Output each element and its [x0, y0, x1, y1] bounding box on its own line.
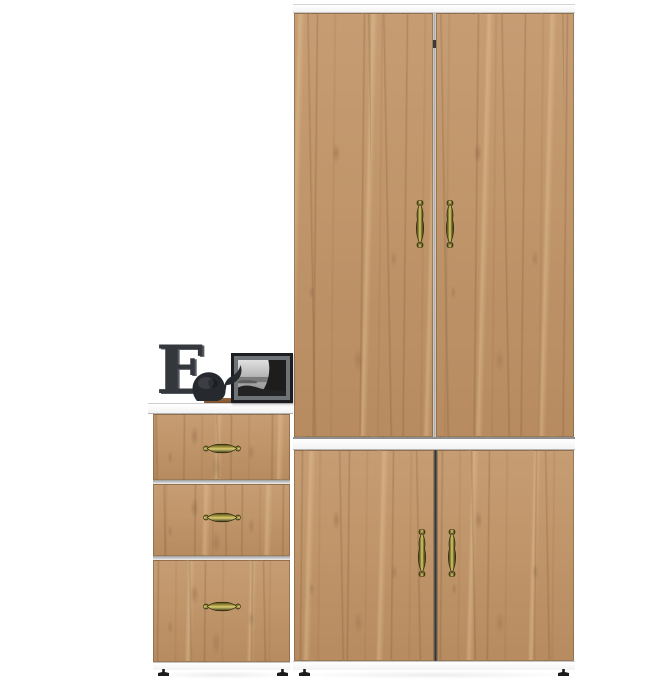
wardrobe-middle-divider	[293, 437, 575, 450]
product-photo-stage: E	[0, 0, 666, 700]
drawer-3-handle	[203, 599, 241, 614]
wardrobe-upper-left-door	[294, 13, 433, 437]
wardrobe-top-trim	[293, 4, 575, 13]
wardrobe-lower-right-door	[437, 450, 574, 661]
elephant-figurine	[189, 358, 247, 402]
wardrobe-upper-right-door	[436, 13, 574, 437]
chest-base-trim	[153, 662, 290, 670]
lower-left-door-handle	[417, 527, 427, 579]
drawer-2-handle	[203, 510, 241, 525]
chest-floor-shadow	[150, 671, 295, 679]
wardrobe-base-trim	[293, 661, 575, 670]
lower-right-door-handle	[447, 527, 457, 579]
upper-left-door-handle	[415, 200, 425, 248]
drawer-1-handle	[203, 441, 241, 456]
wardrobe-floor-shadow	[293, 671, 575, 679]
upper-right-door-handle	[445, 200, 455, 248]
wardrobe-lower-left-door	[294, 450, 434, 661]
